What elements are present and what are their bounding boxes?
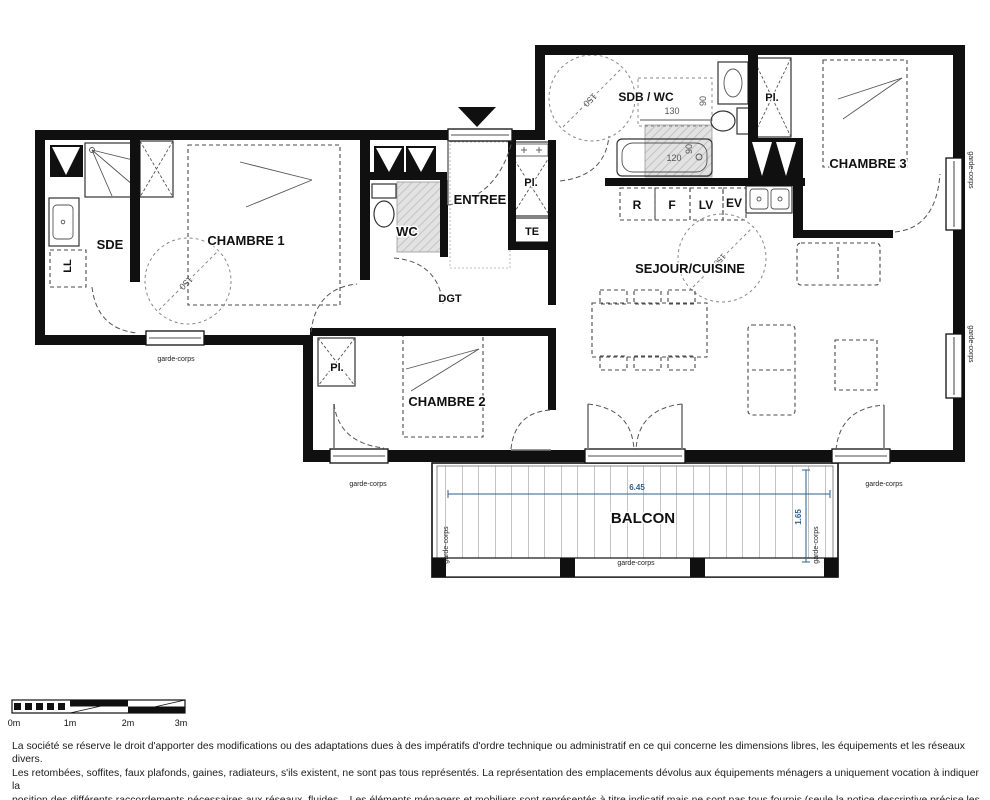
- room-label-sejour: SEJOUR/CUISINE: [635, 261, 745, 276]
- scale-label-2m: 2m: [122, 718, 135, 728]
- wc-duct-hatch: [397, 182, 442, 252]
- chair-icon: [600, 356, 627, 370]
- chair-icon: [634, 290, 661, 304]
- disclaimer-line: position des différents raccordements né…: [12, 794, 980, 800]
- entrance-marker-icon: [458, 107, 496, 127]
- sdb-depth-dim: 90: [698, 96, 708, 106]
- room-label-wc: WC: [396, 224, 418, 239]
- railing-label: garde-corps: [617, 560, 655, 567]
- scale-label-3m: 3m: [175, 718, 188, 728]
- room-sde-fixtures: LL: [49, 143, 135, 287]
- railing-label: garde-corps: [967, 151, 974, 189]
- sejour-furniture: 150: [592, 214, 880, 415]
- room-label-entree: ENTREE: [454, 192, 507, 207]
- chambre2-window-door-arc: [334, 404, 384, 448]
- floor-plan-drawing: 6.45 1.65 garde-corps garde-corps garde-…: [0, 0, 990, 800]
- room-label-balcon: BALCON: [611, 510, 675, 527]
- walls: [35, 45, 965, 462]
- sink-icon: [718, 62, 748, 104]
- sdb-door-arc: [560, 136, 609, 181]
- room-wc-fixtures: [372, 184, 396, 227]
- room-label-chambre3: CHAMBRE 3: [829, 156, 906, 171]
- french-door-left-arc: [588, 404, 634, 450]
- room-chambre1-closet: [140, 141, 173, 197]
- balcony-post: [560, 558, 575, 577]
- chambre1-door-arc: [311, 284, 357, 332]
- chair-icon: [668, 290, 695, 304]
- bed-icon: [823, 60, 907, 167]
- scale-bar: 0m 1m 2m 3m: [8, 700, 188, 728]
- disclaimer-line: Les retombées, soffites, faux plafonds, …: [12, 767, 980, 794]
- turning-circle-dim: 150: [581, 91, 599, 109]
- chambre2-door-arc: [511, 410, 551, 449]
- bed-icon: [188, 145, 340, 305]
- bath-length-dim: 120: [666, 153, 681, 163]
- washing-machine-label: LL: [62, 259, 74, 273]
- kitchen-label-sink: EV: [726, 196, 742, 210]
- sdb-width-dim: 130: [664, 106, 679, 116]
- railing-label: garde-corps: [967, 325, 974, 363]
- room-label-chambre1: CHAMBRE 1: [207, 233, 284, 248]
- scale-label-0m: 0m: [8, 718, 21, 728]
- sde-door-arc: [92, 287, 137, 333]
- bath-width-dim: 90: [684, 144, 694, 154]
- scale-label-1m: 1m: [64, 718, 77, 728]
- chair-icon: [668, 356, 695, 370]
- toilet-icon: [372, 184, 396, 198]
- disclaimer-line: La société se réserve le droit d'apporte…: [12, 740, 980, 767]
- toilet-icon: [737, 108, 749, 134]
- closet-label-pl: Pl.: [330, 362, 343, 374]
- room-label-chambre2: CHAMBRE 2: [408, 394, 485, 409]
- kitchen-label-dishwasher: LV: [699, 198, 713, 212]
- french-door-right-arc: [636, 404, 682, 450]
- wc-door-arc: [394, 258, 443, 304]
- coffee-table-icon: [835, 340, 877, 390]
- sdb-duct-hatch: [645, 125, 712, 177]
- disclaimer: La société se réserve le droit d'apporte…: [12, 740, 980, 800]
- railing-label: garde-corps: [443, 526, 450, 564]
- bed-icon: [403, 333, 483, 437]
- chambre3-door-arc: [895, 174, 940, 232]
- balcony: 6.45 1.65 garde-corps garde-corps garde-…: [432, 463, 838, 577]
- turning-circle-dim: 150: [177, 274, 195, 292]
- balcony-post: [690, 558, 705, 577]
- railing-label: garde-corps: [349, 481, 387, 488]
- room-labels: SDE CHAMBRE 1 WC ENTREE DGT SDB / WC CHA…: [97, 90, 974, 488]
- railing-label: garde-corps: [865, 481, 903, 488]
- closet-label-pl: Pl.: [765, 92, 778, 104]
- balcony-depth-dim: 1.65: [794, 509, 803, 525]
- room-label-sdb-wc: SDB / WC: [618, 90, 674, 104]
- chair-icon: [600, 290, 627, 304]
- chair-icon: [634, 356, 661, 370]
- dining-table-icon: [592, 303, 707, 357]
- sejour-east-door-arc: [836, 405, 884, 450]
- room-label-dgt: DGT: [438, 293, 462, 305]
- kitchen-label-oven: F: [668, 198, 675, 212]
- room-label-sde: SDE: [97, 237, 124, 252]
- balcony-width-dim: 6.45: [629, 483, 645, 492]
- closet-label-pl: Pl.: [524, 177, 537, 189]
- room-chambre2-fixtures: [318, 333, 483, 437]
- railing-label: garde-corps: [157, 356, 195, 363]
- kitchen-label-fridge: R: [633, 198, 642, 212]
- railing-label: garde-corps: [813, 526, 820, 564]
- closet-label-te: TE: [525, 226, 539, 238]
- balcony-post: [824, 558, 838, 577]
- floor-plan-page: 6.45 1.65 garde-corps garde-corps garde-…: [0, 0, 990, 800]
